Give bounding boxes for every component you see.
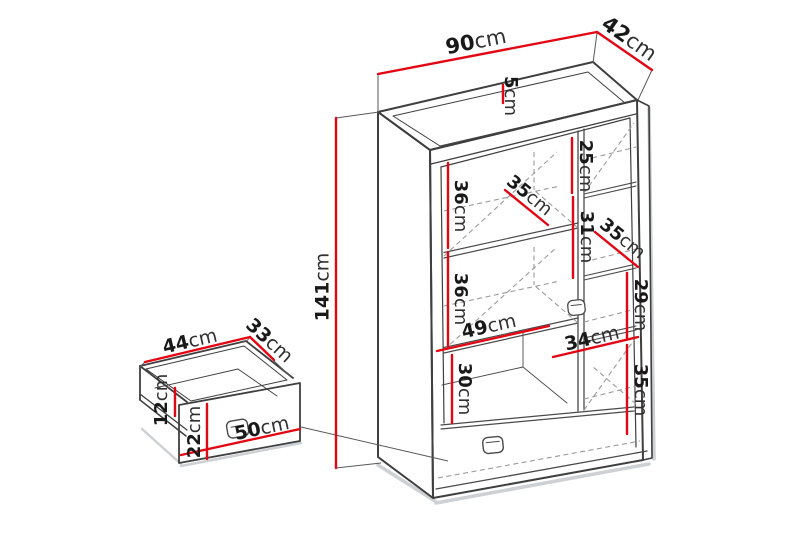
- bottom-drawer-handle: [482, 436, 504, 454]
- dim-label-drawer-front-height: 22cm: [186, 406, 204, 459]
- dim-label-right-section-2: 31cm: [577, 211, 595, 264]
- dim-label-right-section-3: 29cm: [631, 279, 649, 332]
- diagram-drawing: [0, 0, 800, 533]
- small-drawer-handle: [567, 299, 585, 316]
- dim-label-top-rim: 5cm: [501, 76, 519, 116]
- dim-label-left-section-3: 30cm: [455, 363, 473, 416]
- dim-label-cabinet-height: 141cm: [314, 253, 333, 322]
- drawer-pointer-line: [301, 427, 448, 461]
- dim-label-right-section-4: 35cm: [631, 364, 649, 417]
- cabinet-outline: [378, 62, 652, 498]
- dim-label-left-section-1: 36cm: [451, 180, 469, 233]
- dim-label-right-section-1: 25cm: [576, 140, 594, 193]
- dim-label-left-section-2: 36cm: [451, 273, 469, 326]
- dim-label-drawer-side-height: 12cm: [153, 374, 171, 427]
- dimension-diagram: 90cm 42cm 5cm 141cm 36cm 35cm 36cm 49cm …: [0, 0, 800, 533]
